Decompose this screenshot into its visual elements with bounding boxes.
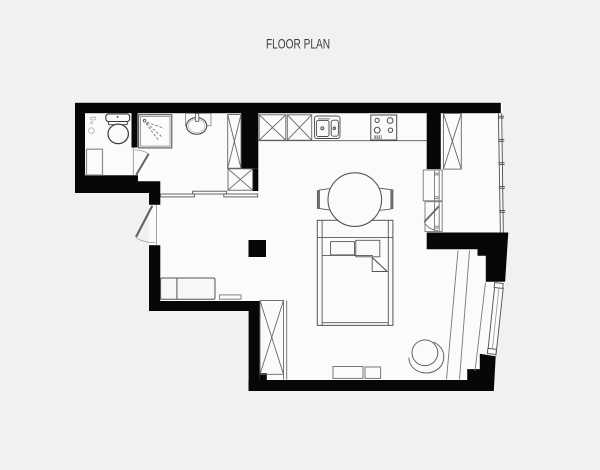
svg-text:FLOOR PLAN: FLOOR PLAN xyxy=(266,37,330,52)
